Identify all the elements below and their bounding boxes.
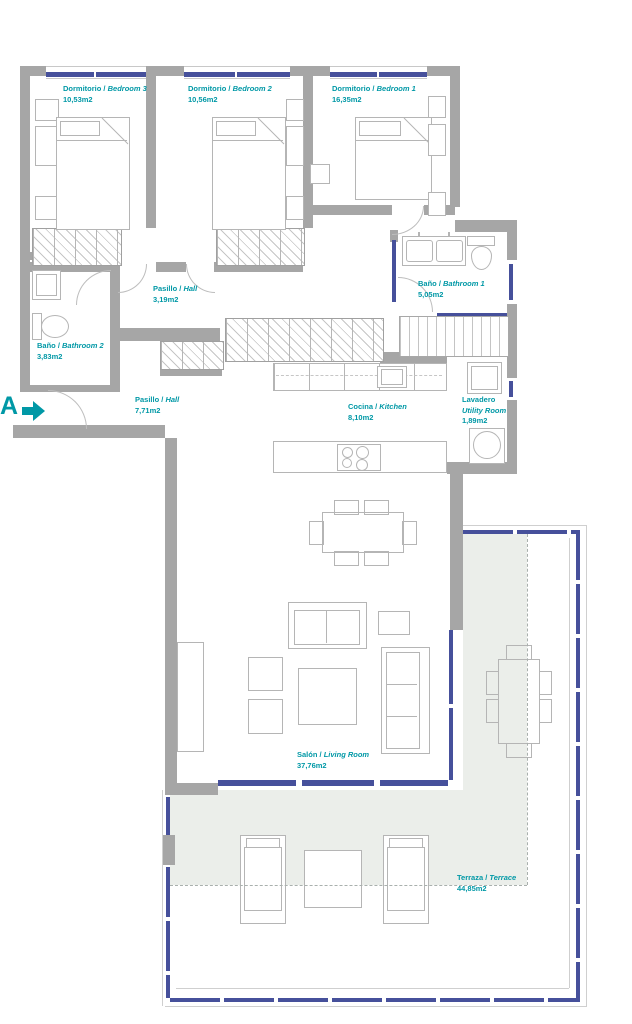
- room-label-hall1: Pasillo / Hall 3,19m2: [153, 284, 197, 305]
- sofa-seat: [294, 610, 360, 645]
- wall-left: [20, 66, 30, 392]
- window-bedroom2: [237, 72, 290, 77]
- room-label-hall2: Pasillo / Hall 7,71m2: [135, 395, 179, 416]
- nightstand: [310, 164, 330, 184]
- dining-chair: [334, 551, 359, 566]
- closet-bedroom2: [216, 228, 305, 266]
- sun-lounger-headrest: [246, 838, 280, 848]
- kitchen-counter-dashed-line: [276, 375, 442, 376]
- sofa-chaise-divider: [387, 716, 417, 717]
- closet-hall: [160, 341, 224, 370]
- wall-bathroom2-bottom: [30, 385, 110, 392]
- window-bedroom1: [379, 72, 427, 77]
- overhang-dashed-line-vertical: [527, 534, 528, 885]
- faucet: [448, 232, 450, 237]
- kitchen-counter: [273, 363, 447, 391]
- closet-corridor-long: [225, 318, 384, 362]
- wall-top: [146, 66, 184, 76]
- sideboard: [177, 642, 204, 752]
- pillow: [216, 121, 256, 136]
- window-bedroom3: [96, 72, 146, 77]
- dining-chair: [334, 500, 359, 515]
- wall-hall-stub: [156, 262, 186, 272]
- nightstand: [428, 192, 446, 216]
- room-label-bathroom2: Baño / Bathroom 2 3,83m2: [37, 341, 104, 362]
- shower-glass-bathroom1: [437, 313, 507, 316]
- terrace-balustrade-top: [463, 530, 576, 534]
- terrace-balustrade-right: [576, 530, 580, 1002]
- sink: [406, 240, 433, 262]
- window-bedroom2: [184, 72, 235, 77]
- faucet: [418, 232, 420, 237]
- door-arc-bathroom2: [76, 270, 111, 305]
- room-label-kitchen: Cocina / Kitchen 8,10m2: [348, 402, 407, 423]
- washing-machine-drum: [473, 431, 501, 459]
- room-label-bedroom1: Dormitorio / Bedroom 1 16,35m2: [332, 84, 416, 105]
- pillow: [60, 121, 100, 136]
- room-label-bedroom3: Dormitorio / Bedroom 3 10,53m2: [63, 84, 147, 105]
- nightstand: [428, 96, 446, 118]
- dining-chair: [364, 500, 389, 515]
- bed-fold-icon: [102, 118, 128, 144]
- terrace-outer-line-left: [162, 790, 163, 1006]
- dining-chair: [364, 551, 389, 566]
- side-table: [378, 611, 410, 635]
- shower-tray-bathroom2: [36, 274, 57, 296]
- terrace-side-table: [304, 850, 362, 908]
- wall-living-bottom-left: [165, 783, 218, 795]
- door-arc-entrance: [48, 390, 87, 429]
- wall-living-right: [450, 474, 463, 630]
- terrace-outer-line-right: [586, 525, 587, 1007]
- nightstand: [286, 126, 304, 166]
- terrace-left-wall-stub: [163, 835, 175, 865]
- wall-right-upper: [450, 66, 460, 207]
- entrance-arrow-icon: [22, 407, 33, 415]
- room-label-utility: LavaderoUtility Room 1,89m2: [462, 395, 506, 427]
- sofa-cushion-divider: [326, 611, 327, 643]
- sofa-chaise-divider: [387, 684, 417, 685]
- sink: [436, 240, 463, 262]
- toilet-bowl-bathroom2: [41, 315, 69, 338]
- terrace-chair: [486, 699, 499, 723]
- window-bathroom1: [509, 264, 513, 300]
- burner: [356, 459, 368, 471]
- terrace-chair: [539, 699, 552, 723]
- room-label-bathroom1: Baño / Bathroom 1 5,05m2: [418, 279, 485, 300]
- toilet-tank-bathroom1: [467, 236, 495, 246]
- wall-bedroom1-bottom: [312, 205, 392, 215]
- shower-bathroom1: [399, 316, 509, 357]
- burner: [342, 458, 352, 468]
- coffee-table: [298, 668, 357, 725]
- floor-plan: A Dormitorio / Bedroom 3 10,53m2 Dormito…: [0, 0, 632, 1024]
- window-bedroom1: [330, 72, 377, 77]
- terrace-chair: [506, 743, 532, 758]
- entrance-marker: A: [0, 392, 18, 421]
- terrace-inner-line-bottom: [176, 988, 569, 989]
- utility-cabinet-inner: [471, 366, 498, 390]
- sun-lounger-headrest: [389, 838, 423, 848]
- dining-chair: [402, 521, 417, 545]
- burner: [342, 447, 353, 458]
- oven-inner: [381, 369, 403, 385]
- wall-hall-bottom: [13, 425, 165, 438]
- wall-bedroom3-bedroom2: [146, 76, 156, 228]
- nightstand: [286, 99, 304, 121]
- terrace-chair: [506, 645, 532, 660]
- toilet-bowl-bathroom1: [471, 246, 492, 270]
- room-label-terrace: Terraza / Terrace 44,85m2: [457, 873, 516, 894]
- closet-bedroom3: [32, 228, 122, 266]
- burner: [356, 446, 369, 459]
- sun-lounger-cushion: [244, 847, 282, 911]
- ottoman: [248, 699, 283, 734]
- window-bedroom3: [46, 72, 94, 77]
- nightstand: [428, 124, 446, 156]
- towel-radiator-bathroom1: [392, 240, 396, 302]
- dining-table: [322, 512, 404, 553]
- glazing-living-south: [302, 780, 374, 786]
- sofa-chaise-seat: [386, 652, 420, 749]
- wall-living-left: [165, 438, 177, 783]
- terrace-chair: [486, 671, 499, 695]
- pillow: [359, 121, 401, 136]
- terrace-balustrade-left-a: [166, 797, 170, 835]
- bed-fold-icon: [258, 118, 284, 144]
- terrace-balustrade-left-b: [166, 867, 170, 998]
- door-arc-bedroom1: [392, 206, 424, 235]
- glazing-living-south: [218, 780, 296, 786]
- nightstand: [286, 196, 304, 220]
- terrace-chair: [539, 671, 552, 695]
- entrance-arrow-icon: [33, 401, 45, 421]
- wall-top: [290, 66, 330, 76]
- wall-hall1-bottom: [110, 328, 220, 341]
- door-arc-bedroom3: [118, 264, 147, 293]
- terrace-outer-line-top: [463, 525, 586, 526]
- window-utility: [509, 381, 513, 397]
- bed-fold-icon: [404, 118, 430, 144]
- glazing-living-east: [449, 630, 453, 704]
- dining-chair: [309, 521, 324, 545]
- glazing-living-east: [449, 708, 453, 780]
- terrace-table: [498, 659, 540, 744]
- entrance-letter: A: [0, 392, 18, 420]
- terrace-balustrade-bottom: [170, 998, 576, 1002]
- glazing-living-south: [380, 780, 448, 786]
- room-label-living: Salón / Living Room 37,76m2: [297, 750, 369, 771]
- terrace-outer-line-bottom: [165, 1006, 586, 1007]
- sun-lounger-cushion: [387, 847, 425, 911]
- room-label-bedroom2: Dormitorio / Bedroom 2 10,56m2: [188, 84, 272, 105]
- ottoman: [248, 657, 283, 691]
- terrace-inner-line-right: [569, 538, 570, 988]
